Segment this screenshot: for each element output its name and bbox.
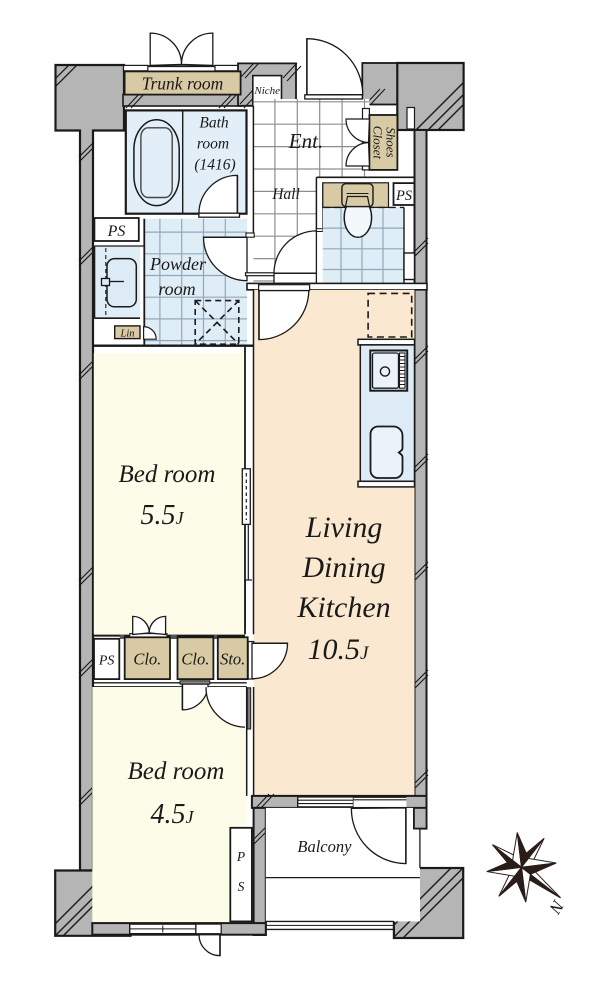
svg-text:Kitchen: Kitchen xyxy=(296,591,390,624)
svg-text:Lin: Lin xyxy=(119,328,134,339)
svg-text:N: N xyxy=(545,896,569,918)
svg-text:Dining: Dining xyxy=(301,551,385,584)
svg-text:Balcony: Balcony xyxy=(297,837,352,856)
svg-text:Closet: Closet xyxy=(370,126,385,160)
svg-text:Bed room: Bed room xyxy=(128,758,225,785)
svg-text:S: S xyxy=(238,879,245,894)
svg-text:room: room xyxy=(158,279,195,299)
svg-text:PS: PS xyxy=(395,188,413,204)
svg-text:Living: Living xyxy=(305,511,383,544)
svg-text:Clo.: Clo. xyxy=(181,650,209,669)
svg-text:PS: PS xyxy=(107,223,126,240)
svg-text:Ent.: Ent. xyxy=(288,129,323,153)
svg-text:Hall: Hall xyxy=(271,186,300,203)
svg-text:Sto.: Sto. xyxy=(220,650,245,669)
svg-text:P: P xyxy=(236,849,245,864)
svg-text:Bed room: Bed room xyxy=(119,461,216,488)
svg-text:room: room xyxy=(197,136,229,153)
svg-text:Powder: Powder xyxy=(149,254,207,274)
svg-text:Clo.: Clo. xyxy=(133,650,161,669)
svg-text:(1416): (1416) xyxy=(194,157,235,174)
svg-text:Bath: Bath xyxy=(199,115,229,132)
svg-text:Trunk room: Trunk room xyxy=(142,74,224,94)
svg-text:PS: PS xyxy=(98,654,115,669)
svg-text:Niche: Niche xyxy=(253,85,280,97)
